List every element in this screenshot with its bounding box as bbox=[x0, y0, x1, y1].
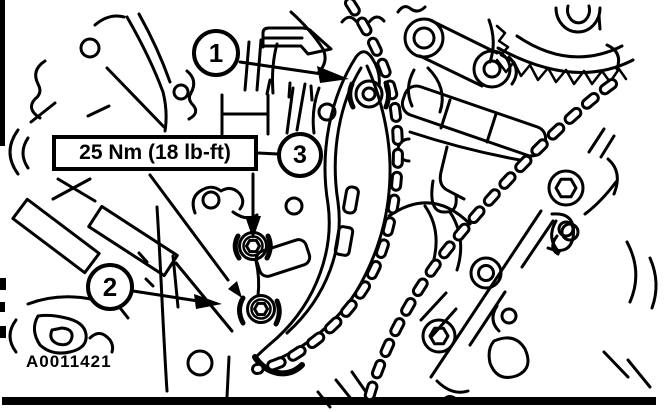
cover-bolt-right-mid bbox=[471, 258, 501, 288]
callout-3: 3 bbox=[277, 132, 323, 178]
tensioner-arm-pivot-bolt bbox=[350, 81, 389, 107]
callout-3-arrow-vertical bbox=[245, 174, 261, 239]
cover-contours-left bbox=[10, 14, 232, 397]
cover-boss-diagonal bbox=[389, 68, 549, 336]
tensioner-bolt-lower bbox=[240, 296, 280, 325]
hex-bolt-right bbox=[549, 171, 583, 205]
callout-1: 1 bbox=[192, 29, 240, 77]
hex-bolt-lower-right bbox=[423, 320, 455, 352]
tensioner-arm bbox=[254, 52, 390, 407]
cover-contours-right bbox=[552, 129, 656, 387]
engine-front-line-art bbox=[0, 0, 672, 412]
torque-box-connector bbox=[258, 153, 278, 154]
callout-2: 2 bbox=[86, 263, 134, 311]
torque-spec-label: 25 Nm (18 lb-ft) bbox=[52, 135, 258, 171]
figure-code: A0011421 bbox=[26, 352, 112, 372]
engine-service-diagram: 1 2 3 25 Nm (18 lb-ft) A0011421 bbox=[0, 0, 672, 412]
